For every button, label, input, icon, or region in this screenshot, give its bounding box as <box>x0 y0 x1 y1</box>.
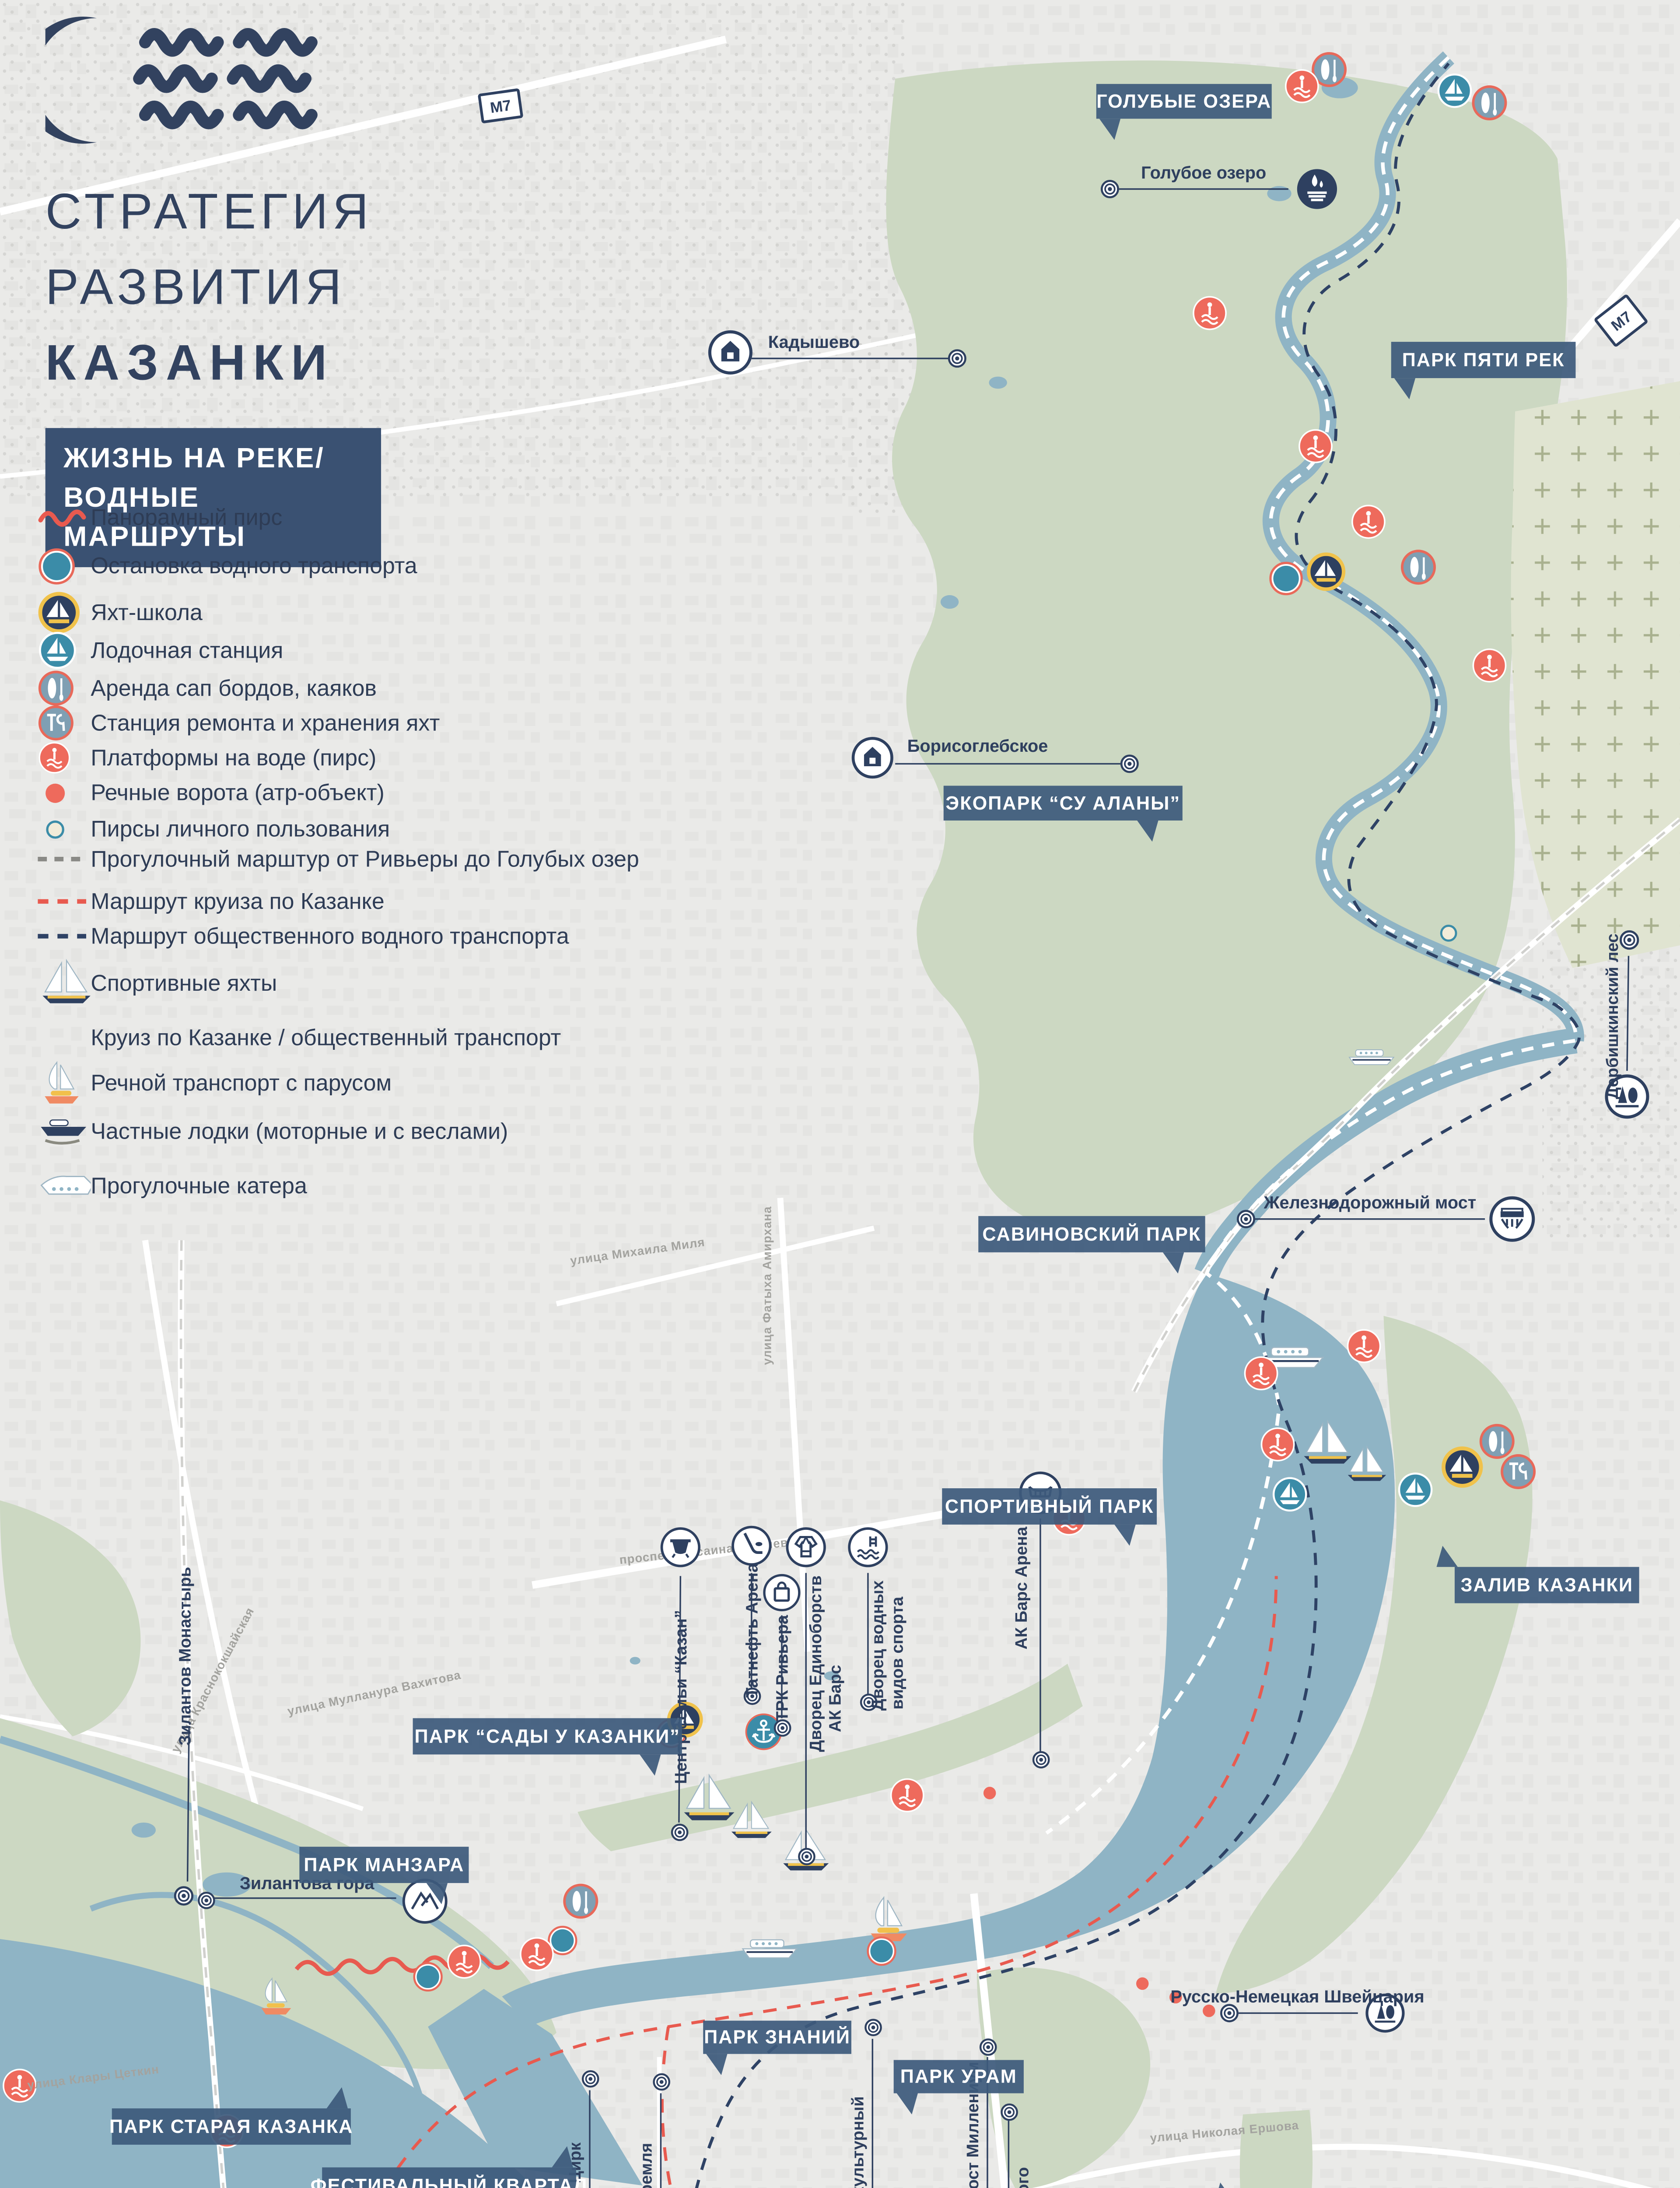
legend-label: Маршрут общественного водного транспорта <box>91 923 569 949</box>
water-platform-icon <box>1299 430 1332 463</box>
target-icon <box>199 1893 214 1908</box>
svg-text:ПАРК МАНЗАРА: ПАРК МАНЗАРА <box>304 1855 464 1876</box>
sup-rental-icon <box>1481 1425 1513 1458</box>
legend-label: Станция ремонта и хранения яхт <box>91 710 440 736</box>
svg-text:ПАРК ПЯТИ РЕК: ПАРК ПЯТИ РЕК <box>1402 350 1565 371</box>
svg-text:АК Барс Арена: АК Барс Арена <box>1012 1526 1031 1649</box>
pool-icon <box>849 1529 887 1566</box>
svg-text:Русско-Немецкая Швейцария: Русско-Немецкая Швейцария <box>1170 1987 1424 2006</box>
yacht-school-icon <box>36 590 91 635</box>
svg-text:Парк Горького: Парк Горького <box>1014 2167 1032 2188</box>
river-gate-icon <box>1136 1978 1149 1990</box>
water-stop-icon <box>36 545 91 586</box>
legend-label: Лодочная станция <box>91 638 283 663</box>
target-icon <box>175 1887 192 1904</box>
water-stop-icon <box>1270 563 1302 594</box>
svg-text:Национальный культурный: Национальный культурный <box>849 2096 868 2188</box>
poster-map-kazanka: улица Михаила Миля улица Фатыха Амирхана… <box>0 0 1680 2188</box>
legend-label: Остановка водного транспорта <box>91 553 417 579</box>
svg-text:ЭКОПАРК “СУ АЛАНЫ”: ЭКОПАРК “СУ АЛАНЫ” <box>945 793 1180 814</box>
legend-label: Прогулочные катера <box>91 1173 307 1199</box>
legend-label: Частные лодки (моторные и с веслами) <box>91 1119 508 1144</box>
sail-transport-icon <box>36 1059 91 1107</box>
svg-text:ПАРК ЗНАНИЙ: ПАРК ЗНАНИЙ <box>704 2026 850 2048</box>
target-icon <box>799 1849 814 1864</box>
bridge-icon <box>1491 1198 1533 1240</box>
boat-station-icon <box>1274 1478 1306 1511</box>
subtitle-line: ЖИЗНЬ НА РЕКЕ/ <box>63 438 363 478</box>
title-line: РАЗВИТИЯ <box>45 249 545 325</box>
water-stop-icon <box>868 1937 896 1965</box>
svg-text:Кадышево: Кадышево <box>768 333 860 352</box>
water-platform-icon <box>36 740 91 776</box>
private-pier-icon <box>36 817 91 840</box>
water-platform-icon <box>1348 1330 1380 1362</box>
target-icon <box>1221 2005 1237 2021</box>
water-stop-icon <box>414 1963 442 1991</box>
street-label: улица Фатыха Амирхана <box>760 1206 774 1365</box>
water-platform-icon <box>1473 649 1505 682</box>
svg-text:ЗАЛИВ КАЗАНКИ: ЗАЛИВ КАЗАНКИ <box>1460 1575 1633 1596</box>
svg-text:Центр семьи “Казан”: Центр семьи “Казан” <box>672 1610 690 1784</box>
boat-station-icon <box>1438 74 1471 107</box>
cruise-route-icon <box>36 895 91 908</box>
target-icon <box>1102 181 1118 197</box>
target-icon <box>672 1825 687 1840</box>
legend-label: Платформы на воде (пирс) <box>91 745 376 771</box>
svg-text:Железнодорожный мост: Железнодорожный мост <box>1263 1193 1477 1213</box>
crescent-waves-logo <box>45 15 348 148</box>
legend-item: Яхт-школа <box>36 591 203 634</box>
pleasure-boat-icon <box>36 1173 91 1199</box>
svg-text:Татнефть Арена: Татнефть Арена <box>743 1563 762 1697</box>
legend-item: Речной транспорт с парусом <box>36 1055 392 1110</box>
kazan-icon <box>662 1529 700 1566</box>
svg-text:ФЕСТИВАЛЬНЫЙ КВАРТАЛ: ФЕСТИВАЛЬНЫЙ КВАРТАЛ <box>311 2175 588 2188</box>
sup-rental-icon <box>1402 551 1435 583</box>
walk-route-icon <box>36 853 91 865</box>
svg-text:Зилантов Монастырь: Зилантов Монастырь <box>176 1567 194 1745</box>
sup-rental-icon <box>564 1885 597 1918</box>
sport-yacht-icon <box>36 957 91 1009</box>
house-icon <box>710 332 751 373</box>
hockey-icon <box>733 1527 770 1565</box>
svg-text:ПАРК СТАРАЯ КАЗАНКА: ПАРК СТАРАЯ КАЗАНКА <box>109 2116 353 2137</box>
bag-icon <box>764 1575 799 1610</box>
legend-label: Маршрут круиза по Казанке <box>91 889 384 915</box>
legend-label: Круиз по Казанке / общественный транспор… <box>91 1025 561 1051</box>
legend-item: Прогулочные катера <box>36 1164 307 1207</box>
title-line: СТРАТЕГИЯ <box>45 174 545 249</box>
water-platform-icon <box>1193 297 1226 329</box>
water-platform-icon <box>1352 505 1385 538</box>
legend-item: Частные лодки (моторные и с веслами) <box>36 1110 508 1153</box>
legend-item: Маршрут общественного водного транспорта <box>36 915 569 957</box>
boat-station-icon <box>36 629 91 672</box>
svg-text:СПОРТИВНЫЙ ПАРК: СПОРТИВНЫЙ ПАРК <box>945 1496 1154 1517</box>
svg-text:Дербишкинский лес: Дербишкинский лес <box>1603 933 1622 1099</box>
legend-label: Прогулочный марштур от Ривьеры до Голубы… <box>91 846 639 872</box>
panoramic-pier-icon <box>36 502 91 532</box>
title-line: КАЗАНКИ <box>45 325 545 401</box>
water-platform-icon <box>891 1779 924 1812</box>
public-route-icon <box>36 930 91 943</box>
target-icon <box>949 350 965 366</box>
legend-label: Речные ворота (атр-объект) <box>91 780 384 806</box>
legend-item: Круиз по Казанке / общественный транспор… <box>36 1017 561 1059</box>
svg-text:ПАРК УРАМ: ПАРК УРАМ <box>900 2066 1017 2087</box>
legend-item: Спортивные яхты <box>36 953 277 1013</box>
repair-station-icon <box>1502 1455 1534 1488</box>
svg-text:Дворец водных: Дворец водных <box>868 1581 887 1711</box>
legend-item: Прогулочный марштур от Ривьеры до Голубы… <box>36 838 639 880</box>
cruise-ship-icon <box>36 1024 91 1051</box>
target-icon <box>654 2074 669 2090</box>
legend-label: Спортивные яхты <box>91 970 277 996</box>
water-platform-icon <box>1286 70 1318 102</box>
svg-text:ПАРК “САДЫ У КАЗАНКИ”: ПАРК “САДЫ У КАЗАНКИ” <box>415 1726 680 1747</box>
water-platform-icon <box>1245 1357 1277 1389</box>
svg-text:ТРК Ривьера: ТРК Ривьера <box>773 1615 792 1722</box>
legend-label: Аренда сап бордов, каяков <box>91 675 377 701</box>
svg-text:АК Барс: АК Барс <box>826 1665 845 1732</box>
sup-rental-icon <box>1473 87 1505 119</box>
header: СТРАТЕГИЯ РАЗВИТИЯ КАЗАНКИ ЖИЗНЬ НА РЕКЕ… <box>45 15 545 568</box>
svg-text:видов спорта: видов спорта <box>888 1596 906 1710</box>
lake-icon <box>1297 169 1337 209</box>
water-platform-icon <box>448 1946 480 1978</box>
svg-text:Дворец Единоборств: Дворец Единоборств <box>807 1575 825 1752</box>
legend-item: Остановка водного транспорта <box>36 544 417 587</box>
river-gate-icon <box>983 1787 996 1799</box>
water-platform-icon <box>521 1938 553 1970</box>
legend-label: Панорамный пирс <box>91 505 282 530</box>
svg-text:САВИНОВСКИЙ ПАРК: САВИНОВСКИЙ ПАРК <box>982 1224 1201 1245</box>
svg-text:Голубое озеро: Голубое озеро <box>1141 163 1266 182</box>
target-icon <box>1001 2104 1017 2120</box>
private-pier-icon <box>1441 926 1456 941</box>
target-icon <box>1033 1752 1049 1767</box>
yacht-school-icon <box>1443 1448 1481 1486</box>
target-icon <box>1238 1211 1254 1227</box>
svg-text:ГОЛУБЫЕ ОЗЕРА: ГОЛУБЫЕ ОЗЕРА <box>1096 91 1271 112</box>
water-platform-icon <box>1262 1428 1294 1461</box>
legend-label: Речной транспорт с парусом <box>91 1070 392 1096</box>
legend-item: Лодочная станция <box>36 629 283 672</box>
page-title: СТРАТЕГИЯ РАЗВИТИЯ КАЗАНКИ <box>45 174 545 400</box>
target-icon <box>865 2020 881 2035</box>
target-icon <box>775 1720 790 1736</box>
house-icon <box>853 738 892 777</box>
river-gate-icon <box>36 780 91 806</box>
legend-label: Яхт-школа <box>91 600 202 625</box>
boat-station-icon <box>1399 1473 1431 1506</box>
target-icon <box>980 2039 996 2055</box>
svg-text:Борисоглебское: Борисоглебское <box>907 736 1048 756</box>
legend-item: Панорамный пирс <box>36 496 282 539</box>
target-icon <box>1620 931 1638 948</box>
kimono-icon <box>787 1529 825 1566</box>
svg-text:Комплекс Кремля: Комплекс Кремля <box>637 2143 656 2188</box>
private-boat-icon <box>36 1116 91 1147</box>
yacht-school-icon <box>1309 554 1344 589</box>
target-icon <box>1121 756 1137 772</box>
target-icon <box>583 2071 598 2086</box>
